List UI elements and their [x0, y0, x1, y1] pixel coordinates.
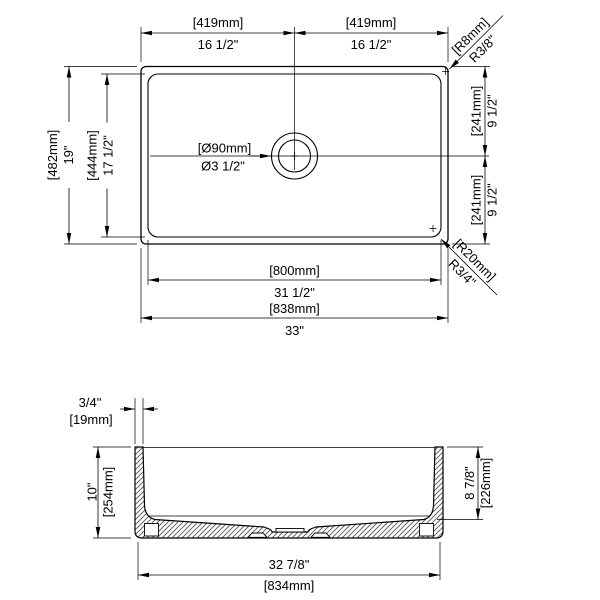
dim-drain-offset-lower-mm: [241mm] [469, 175, 484, 226]
dim-overall-width-mm: [838mm] [269, 301, 320, 316]
right-drain-slot [311, 533, 330, 537]
dim-half-width-right-inch: 16 1/2" [351, 37, 392, 52]
dim-bowl-depth-front-labels: 8 7/8" [226mm] [462, 458, 493, 509]
dim-overall-width-inch: 33" [285, 323, 304, 338]
dim-bowl-width-inch: 31 1/2" [274, 285, 315, 300]
dim-wall-thickness-inch: 3/4" [79, 395, 102, 410]
dim-outer-depth-labels: [482mm] 19" [45, 122, 77, 188]
dim-bottom-width-inch: 32 7/8" [269, 557, 310, 572]
dim-outer-depth-inch: 19" [61, 145, 76, 164]
sink-technical-drawing: [419mm] 16 1/2" [419mm] 16 1/2" [482mm] … [0, 0, 600, 600]
dim-bowl-width-mm: [800mm] [269, 263, 320, 278]
dim-half-width-right-mm: [419mm] [346, 15, 397, 30]
drawing-svg: [419mm] 16 1/2" [419mm] 16 1/2" [482mm] … [0, 0, 600, 600]
dim-drain-offset-upper-inch: 9 1/2" [485, 94, 500, 128]
left-drain-slot [248, 533, 267, 537]
section-cut-body [135, 447, 443, 538]
dim-half-width-left-mm: [419mm] [193, 15, 244, 30]
dim-drain-offset-upper-mm: [241mm] [469, 86, 484, 137]
dim-half-width-left-inch: 16 1/2" [198, 37, 239, 52]
drain-recess-plate [276, 529, 304, 533]
dim-bottom-width-mm: [834mm] [264, 578, 315, 593]
left-foot-notch [145, 524, 159, 537]
dim-wall-thickness-mm: [19mm] [69, 412, 112, 427]
dim-bowl-depth-labels: [444mm] 17 1/2" [84, 123, 116, 189]
bowl-radius-center-mark [430, 225, 437, 232]
right-foot-notch [420, 524, 434, 537]
dim-bowl-depth-inch: 17 1/2" [101, 135, 116, 176]
drain-diameter-inch: Ø3 1/2" [201, 159, 245, 174]
dim-overall-height-mm: [254mm] [101, 467, 116, 518]
top-view: [419mm] 16 1/2" [419mm] 16 1/2" [482mm] … [45, 15, 505, 338]
dim-bowl-depth-front-mm: [226mm] [478, 458, 493, 509]
dim-bowl-depth-mm: [444mm] [85, 130, 100, 181]
dim-drain-offset-lower-labels: [241mm] 9 1/2" [469, 175, 500, 226]
drain-center-mark [291, 152, 299, 160]
dim-outer-depth-mm: [482mm] [45, 130, 60, 181]
drain-diameter-mm: [Ø90mm] [198, 141, 251, 156]
dim-drain-offset-upper-labels: [241mm] 9 1/2" [469, 86, 500, 137]
front-section-view: 3/4" [19mm] 10" [254mm] 8 7/8" [226mm] 3… [69, 395, 493, 593]
dim-overall-height-inch: 10" [85, 482, 100, 501]
dim-drain-offset-lower-inch: 9 1/2" [485, 183, 500, 217]
dim-bowl-depth-front-inch: 8 7/8" [462, 466, 477, 500]
dim-overall-height-labels: 10" [254mm] [85, 467, 116, 518]
